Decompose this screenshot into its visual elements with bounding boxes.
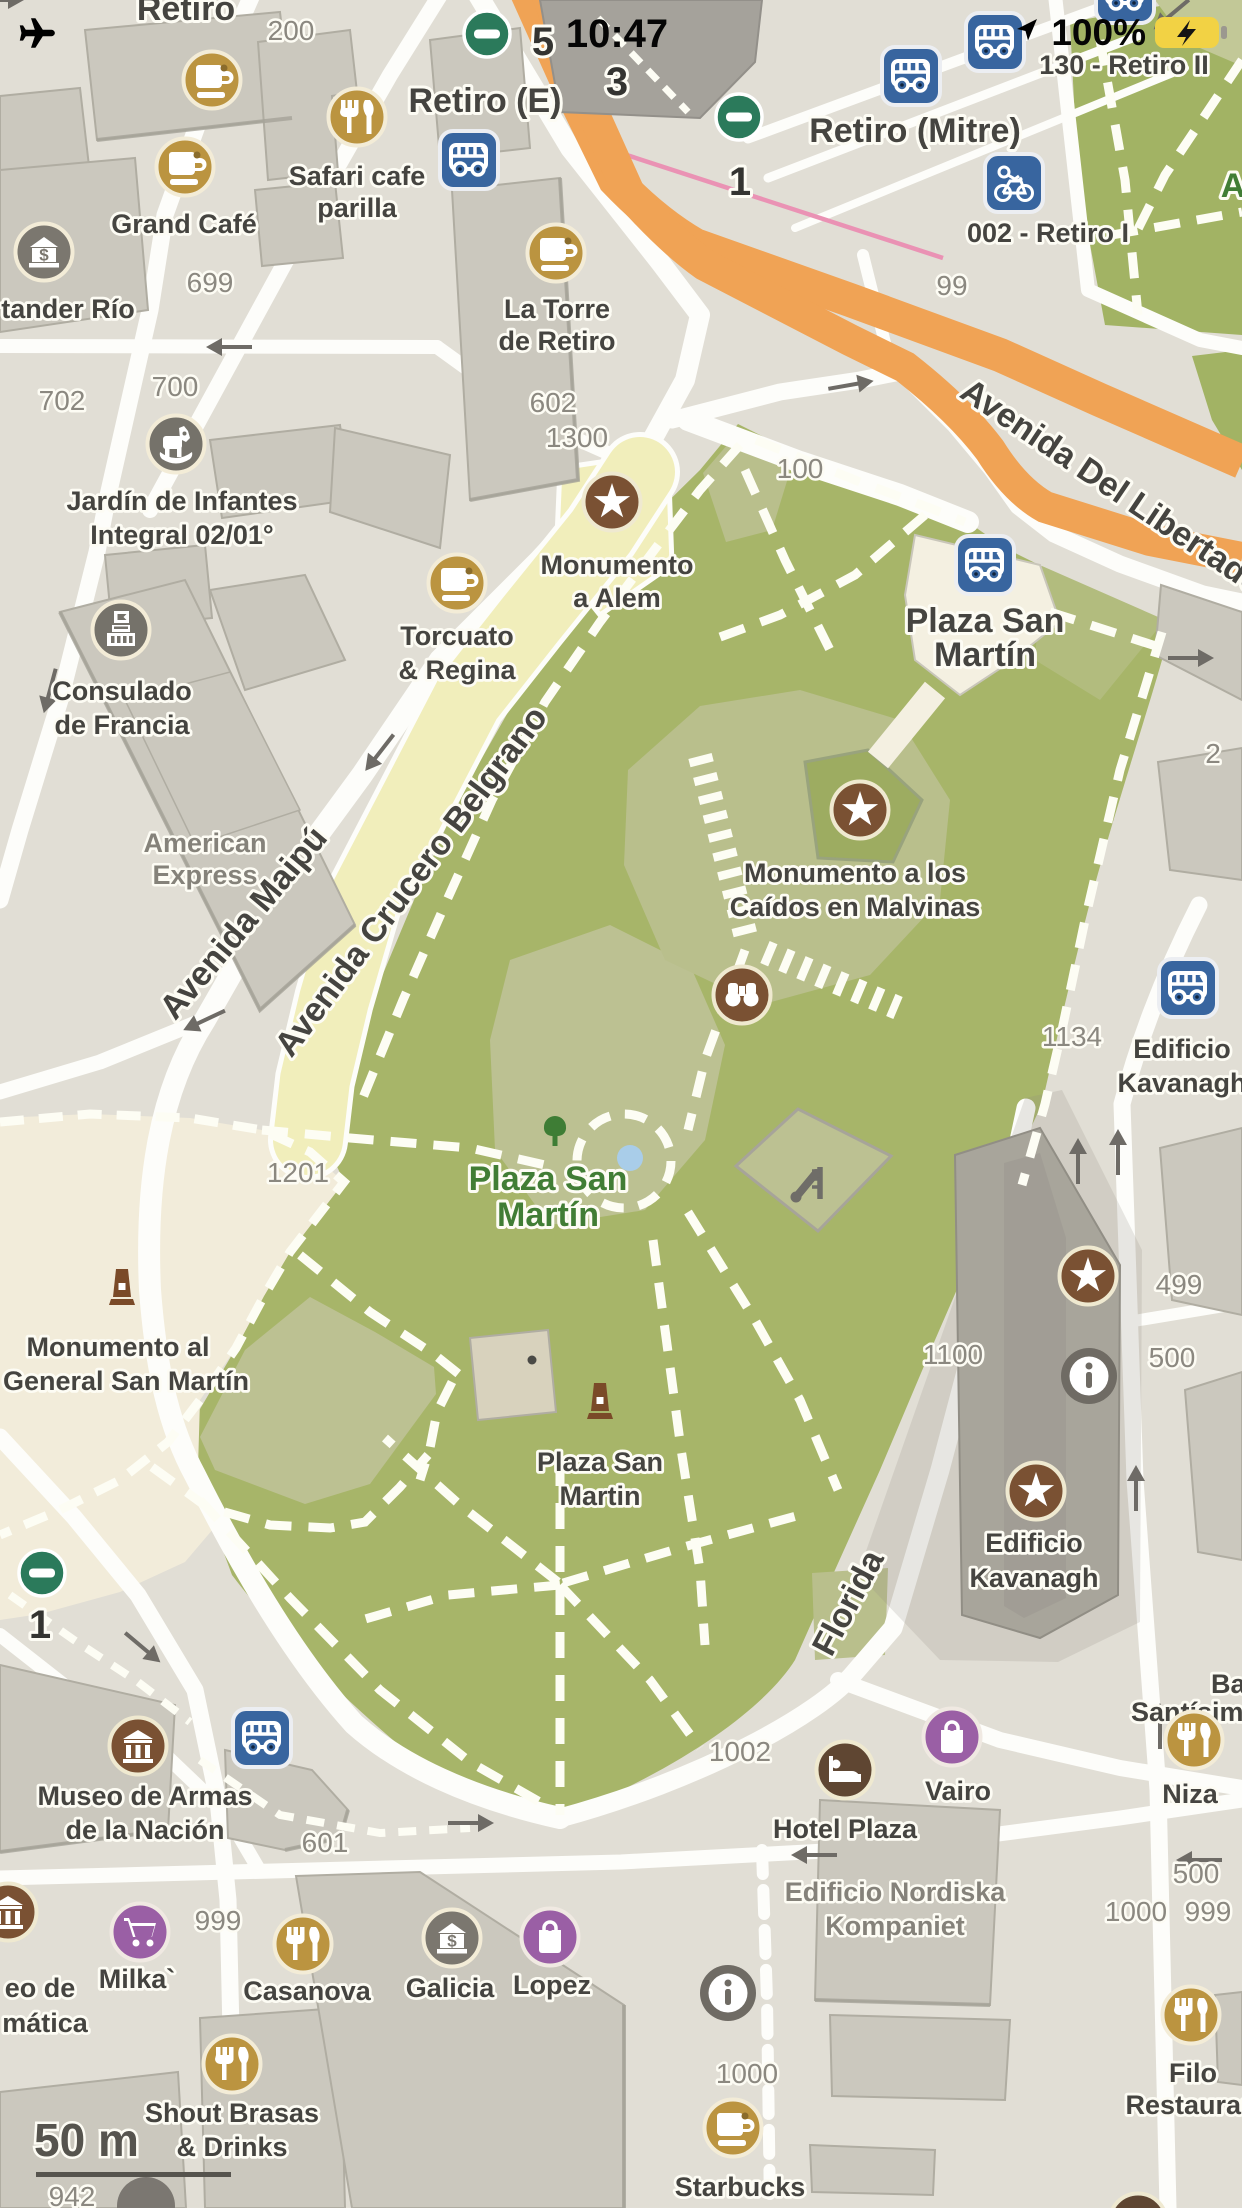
svg-text:Martin: Martin	[560, 1481, 641, 1511]
svg-text:Lopez: Lopez	[513, 1970, 591, 2000]
svg-text:1000: 1000	[1105, 1896, 1167, 1927]
svg-text:700: 700	[152, 371, 199, 402]
svg-text:130 - Retiro II: 130 - Retiro II	[1039, 50, 1209, 80]
svg-text:Galicia: Galicia	[406, 1973, 496, 2003]
svg-text:Ba: Ba	[1211, 1669, 1242, 1699]
svg-text:100%: 100%	[1051, 12, 1146, 53]
svg-text:de Francia: de Francia	[54, 710, 190, 740]
svg-text:500: 500	[1173, 1858, 1220, 1889]
svg-text:Torcuato: Torcuato	[400, 621, 514, 651]
svg-text:Casanova: Casanova	[243, 1976, 372, 2006]
svg-text:Vairo: Vairo	[925, 1776, 991, 1806]
svg-text:Grand Café: Grand Café	[111, 209, 257, 239]
svg-text:500: 500	[1149, 1342, 1196, 1373]
svg-text:50 m: 50 m	[34, 2114, 139, 2166]
svg-text:1: 1	[29, 1603, 51, 1647]
svg-text:Milka`: Milka`	[99, 1964, 176, 1994]
svg-text:1134: 1134	[1042, 1021, 1102, 1052]
svg-text:Plaza San: Plaza San	[906, 602, 1065, 640]
svg-text:499: 499	[1156, 1269, 1203, 1300]
svg-text:Monumento: Monumento	[541, 550, 694, 580]
svg-text:Jardín de Infantes: Jardín de Infantes	[66, 486, 297, 516]
svg-text:& Drinks: & Drinks	[176, 2132, 287, 2162]
svg-text:American: American	[143, 828, 266, 858]
svg-text:100: 100	[777, 453, 824, 484]
svg-text:Monumento al: Monumento al	[27, 1332, 210, 1362]
svg-text:999: 999	[1185, 1896, 1232, 1927]
svg-text:tander Río: tander Río	[1, 294, 135, 324]
svg-text:Martín: Martín	[497, 1196, 599, 1234]
svg-text:601: 601	[302, 1827, 349, 1858]
svg-text:Restaurant: Restaurant	[1125, 2090, 1242, 2120]
svg-text:Museo de Armas: Museo de Armas	[37, 1781, 252, 1811]
svg-text:Consulado: Consulado	[52, 676, 192, 706]
svg-text:10:47: 10:47	[566, 12, 668, 56]
svg-text:Express: Express	[152, 860, 257, 890]
svg-text:Edificio: Edificio	[985, 1528, 1083, 1558]
svg-text:1201: 1201	[267, 1157, 329, 1188]
svg-text:Kompaniet: Kompaniet	[825, 1911, 965, 1941]
svg-text:Safari cafe: Safari cafe	[289, 161, 426, 191]
svg-text:942: 942	[49, 2181, 96, 2208]
svg-text:Shout Brasas: Shout Brasas	[145, 2098, 319, 2128]
svg-text:1: 1	[729, 160, 751, 204]
svg-text:eo de: eo de	[5, 1973, 76, 2003]
svg-text:Caídos en Malvinas: Caídos en Malvinas	[730, 892, 981, 922]
svg-text:2: 2	[1205, 738, 1221, 769]
svg-text:Niza: Niza	[1162, 1779, 1219, 1809]
svg-text:999: 999	[195, 1905, 242, 1936]
svg-text:Edificio Nordiska: Edificio Nordiska	[785, 1877, 1007, 1907]
svg-text:Martín: Martín	[934, 636, 1036, 674]
svg-text:Plaza San: Plaza San	[537, 1447, 663, 1477]
svg-text:Retiro (E): Retiro (E)	[409, 82, 562, 120]
svg-text:General San Martín: General San Martín	[3, 1366, 249, 1396]
svg-text:1000: 1000	[716, 2058, 778, 2089]
svg-text:Kavanagh: Kavanagh	[969, 1563, 1098, 1593]
svg-text:de la Nación: de la Nación	[65, 1815, 224, 1845]
svg-text:3: 3	[606, 60, 628, 104]
svg-text:Filo: Filo	[1169, 2058, 1217, 2088]
svg-text:& Regina: & Regina	[398, 655, 516, 685]
svg-text:200: 200	[268, 15, 315, 46]
svg-text:Starbucks: Starbucks	[675, 2172, 806, 2202]
svg-text:Retiro (Mitre): Retiro (Mitre)	[809, 112, 1021, 150]
svg-text:002 - Retiro I: 002 - Retiro I	[967, 218, 1129, 248]
svg-text:1100: 1100	[923, 1339, 983, 1370]
svg-text:parilla: parilla	[317, 193, 398, 223]
svg-text:A: A	[1221, 167, 1242, 205]
svg-text:Edificio: Edificio	[1133, 1034, 1231, 1064]
svg-text:Integral 02/01°: Integral 02/01°	[90, 520, 273, 550]
svg-text:Monumento a los: Monumento a los	[744, 858, 966, 888]
svg-text:602: 602	[530, 387, 577, 418]
svg-text:Hotel Plaza: Hotel Plaza	[773, 1814, 918, 1844]
svg-text:mática: mática	[2, 2008, 89, 2038]
svg-text:99: 99	[936, 270, 967, 301]
svg-text:a Alem: a Alem	[573, 583, 661, 613]
svg-text:Kavanagh: Kavanagh	[1117, 1068, 1242, 1098]
svg-text:1002: 1002	[709, 1736, 771, 1767]
svg-text:1300: 1300	[546, 422, 608, 453]
svg-text:La Torre: La Torre	[504, 294, 610, 324]
svg-text:702: 702	[39, 385, 86, 416]
svg-text:Retiro: Retiro	[137, 0, 235, 28]
svg-text:5: 5	[532, 20, 554, 64]
svg-text:de Retiro: de Retiro	[498, 326, 615, 356]
svg-text:Plaza San: Plaza San	[469, 1160, 628, 1198]
svg-text:699: 699	[187, 267, 234, 298]
